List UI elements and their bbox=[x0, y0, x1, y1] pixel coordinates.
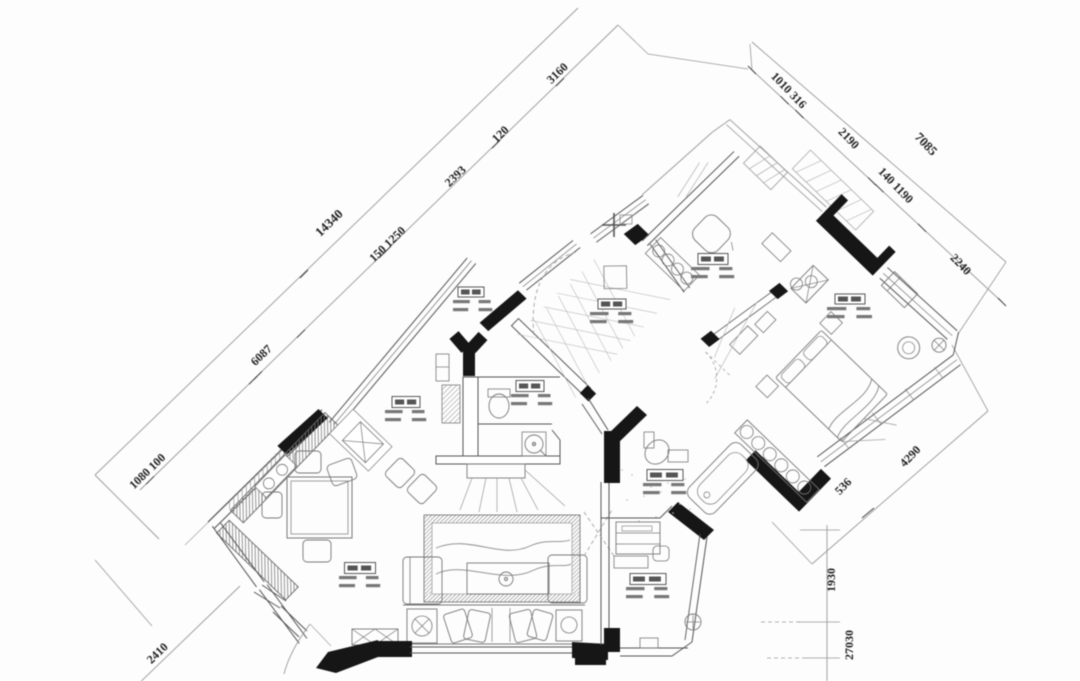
svg-text:27030: 27030 bbox=[842, 630, 856, 660]
svg-text:1930: 1930 bbox=[824, 568, 838, 592]
